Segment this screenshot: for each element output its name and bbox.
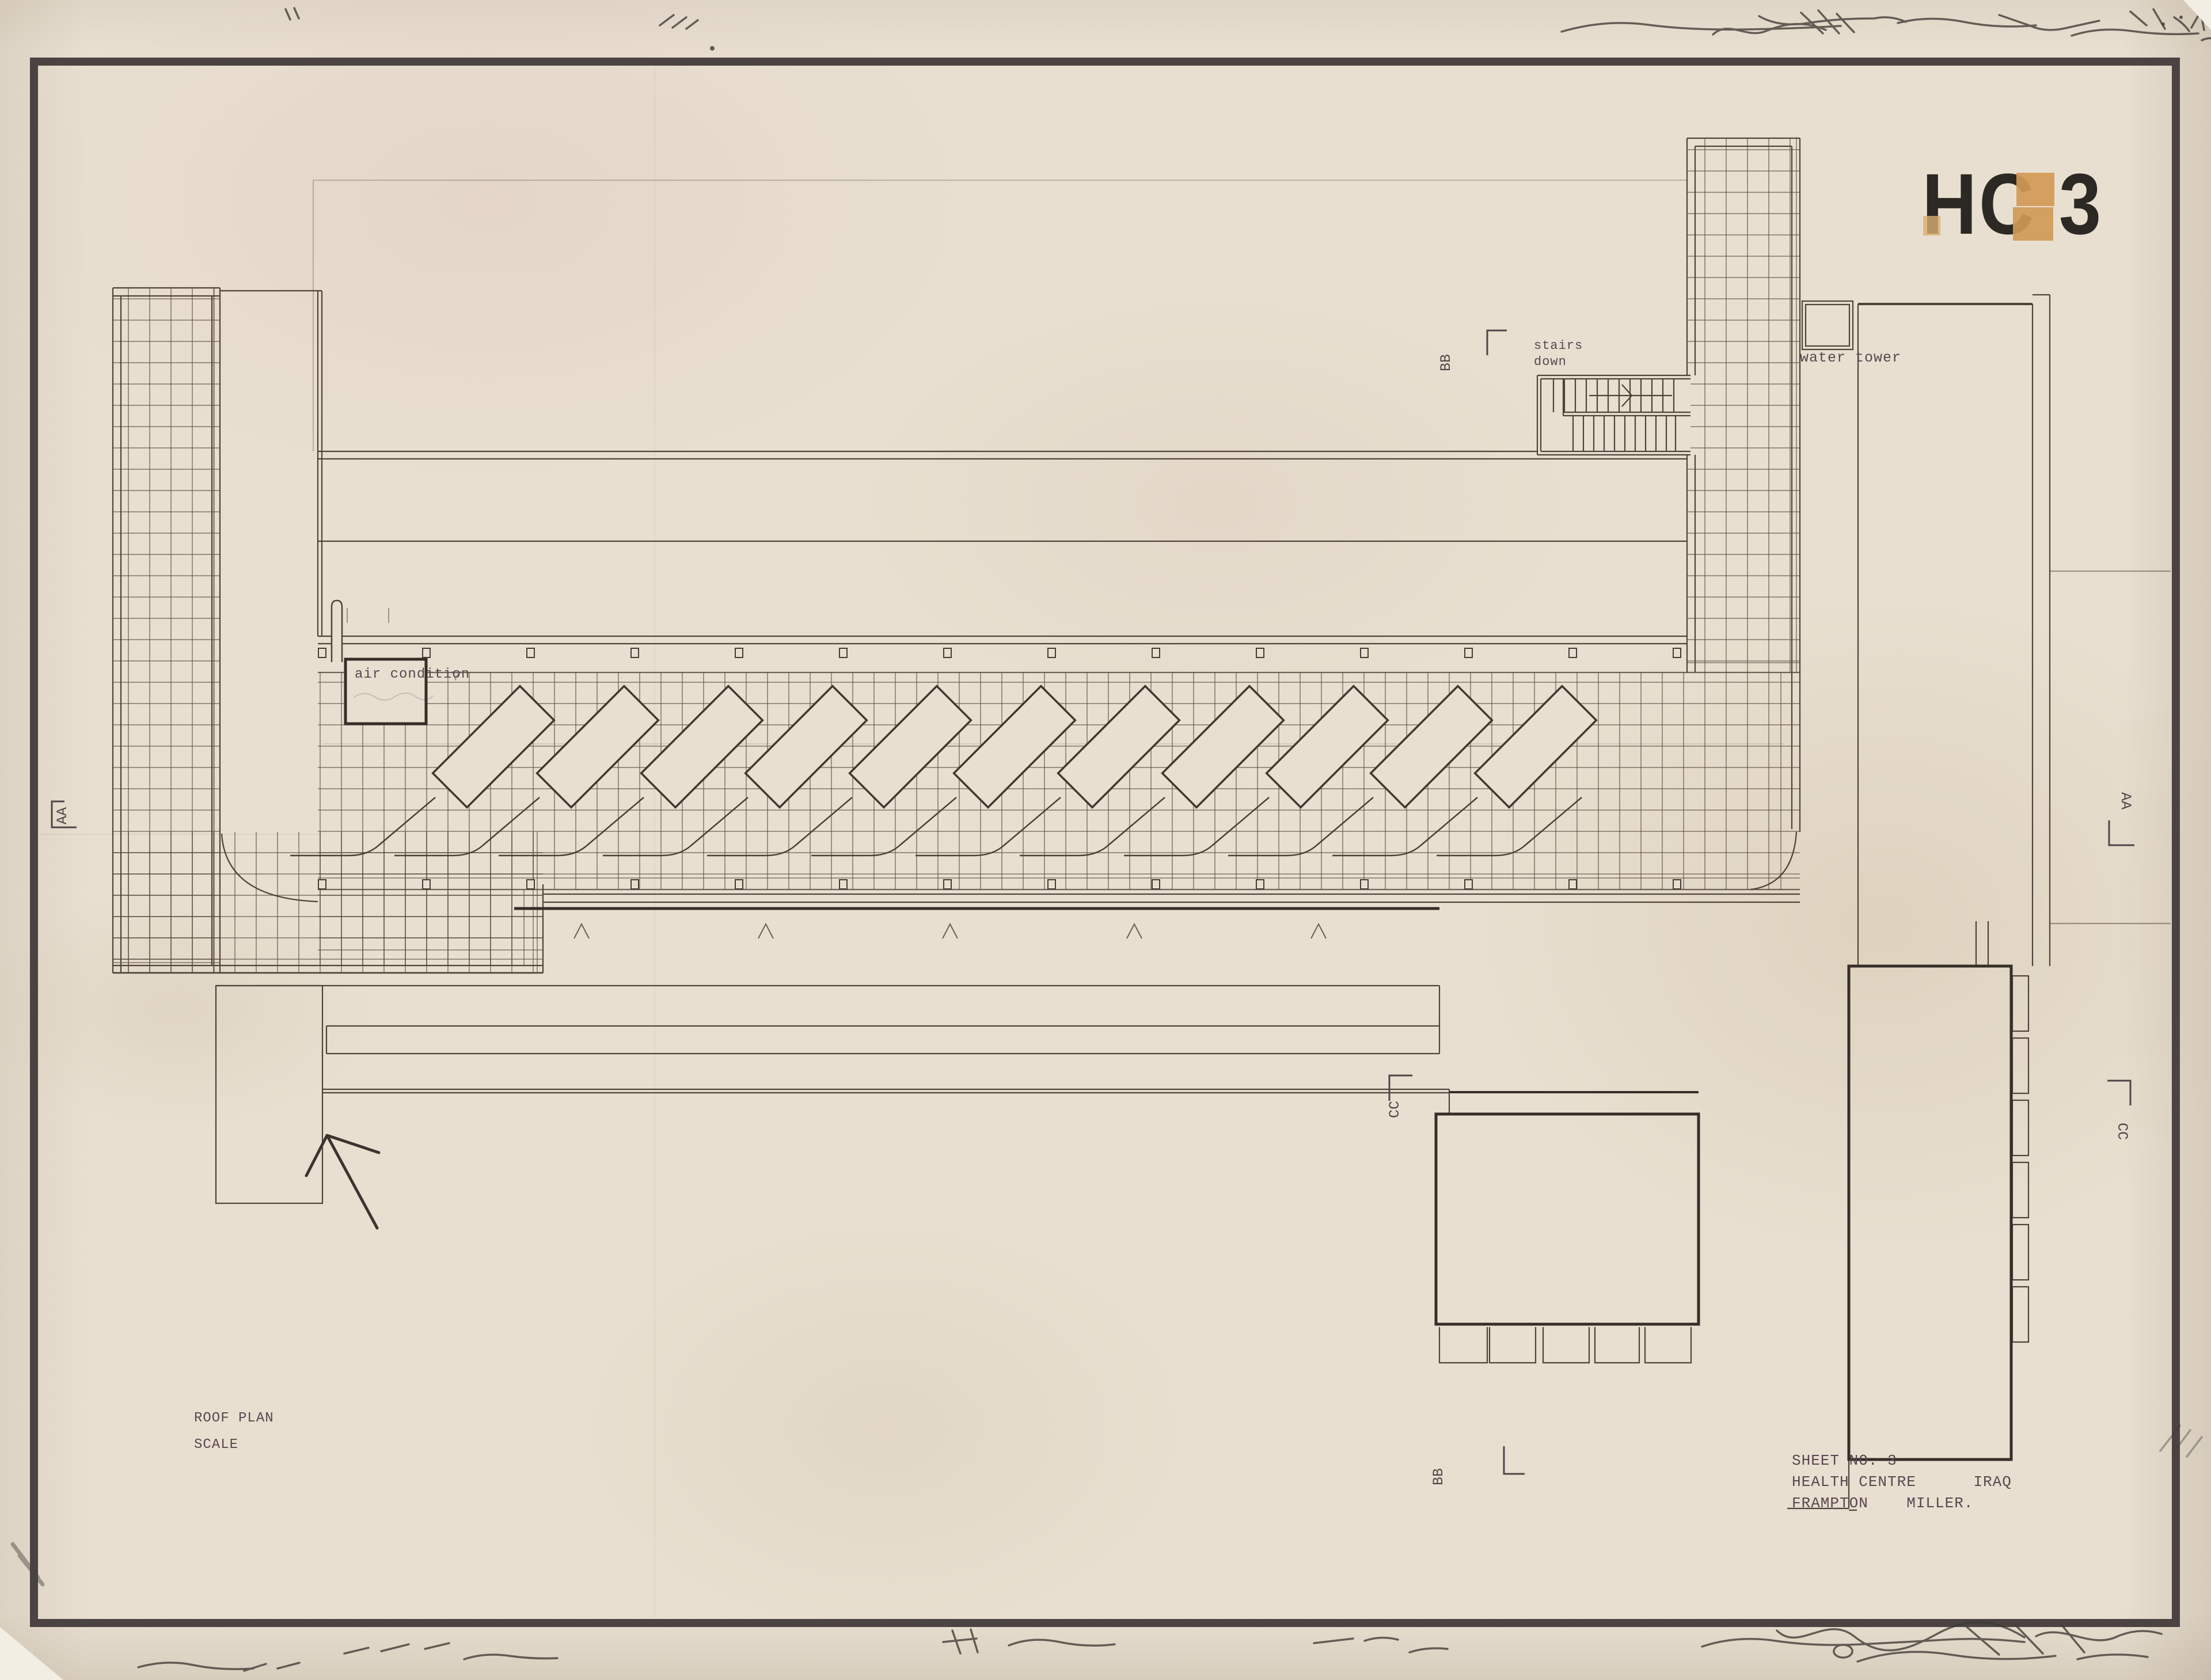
pencil-scribbles <box>0 0 2211 1680</box>
drawing-sheet: stairs down water tower air condition RO… <box>0 0 2211 1680</box>
